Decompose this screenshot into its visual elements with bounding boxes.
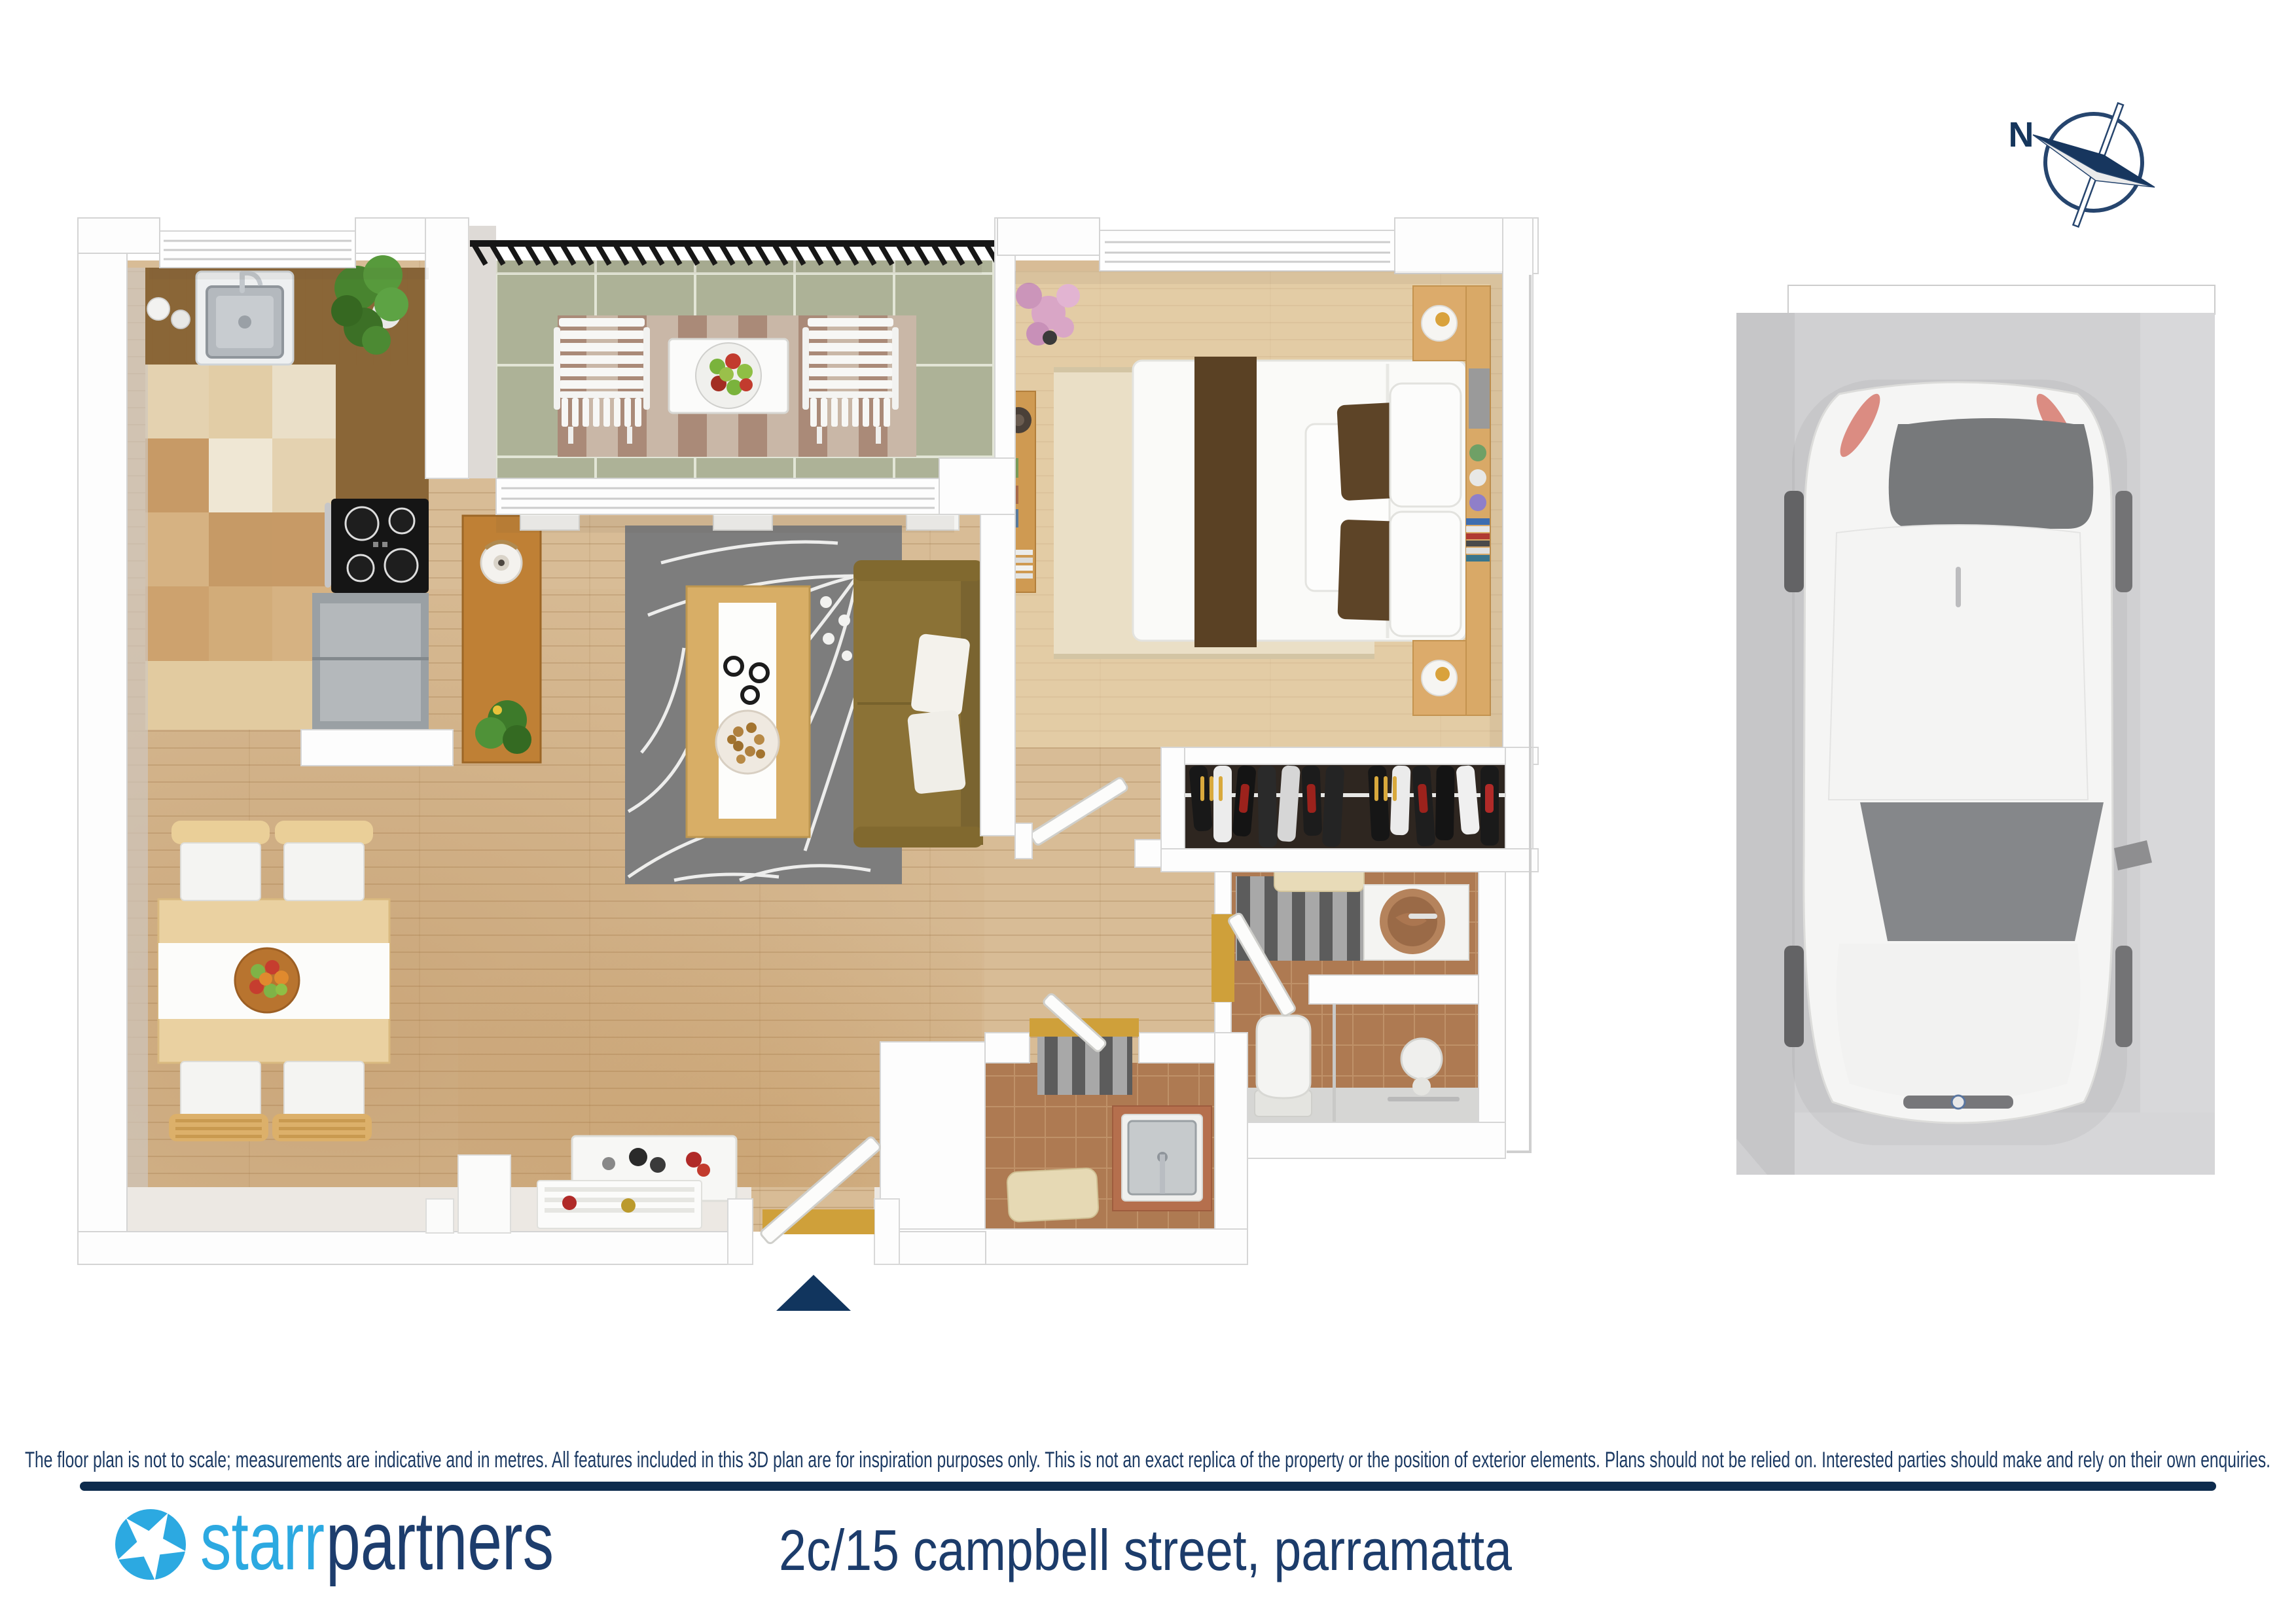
svg-text:N: N xyxy=(2009,115,2034,154)
svg-text:2c/15 campbell street, parrama: 2c/15 campbell street, parramatta xyxy=(779,1518,1512,1582)
svg-text:partners: partners xyxy=(326,1495,554,1587)
svg-text:starr: starr xyxy=(200,1495,325,1587)
svg-text:The floor plan is not to scale: The floor plan is not to scale; measurem… xyxy=(25,1448,2270,1472)
